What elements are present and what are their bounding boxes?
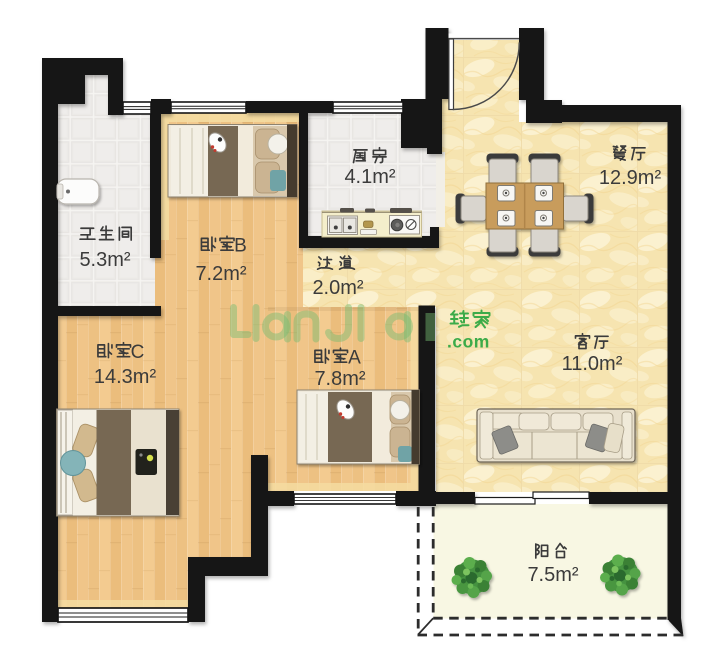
svg-text:.com: .com: [447, 332, 490, 352]
svg-text:7.2m²: 7.2m²: [195, 263, 246, 285]
svg-text:5.3m²: 5.3m²: [79, 249, 130, 271]
svg-text:7.5m²: 7.5m²: [527, 564, 578, 586]
svg-text:12.9m²: 12.9m²: [599, 167, 662, 189]
svg-text:A: A: [348, 348, 361, 369]
svg-text:C: C: [131, 342, 145, 363]
svg-text:B: B: [234, 236, 247, 257]
svg-text:2.0m²: 2.0m²: [312, 277, 363, 299]
svg-text:14.3m²: 14.3m²: [94, 366, 157, 388]
svg-text:7.8m²: 7.8m²: [314, 368, 365, 390]
svg-text:4.1m²: 4.1m²: [344, 166, 395, 188]
svg-text:11.0m²: 11.0m²: [562, 353, 623, 375]
